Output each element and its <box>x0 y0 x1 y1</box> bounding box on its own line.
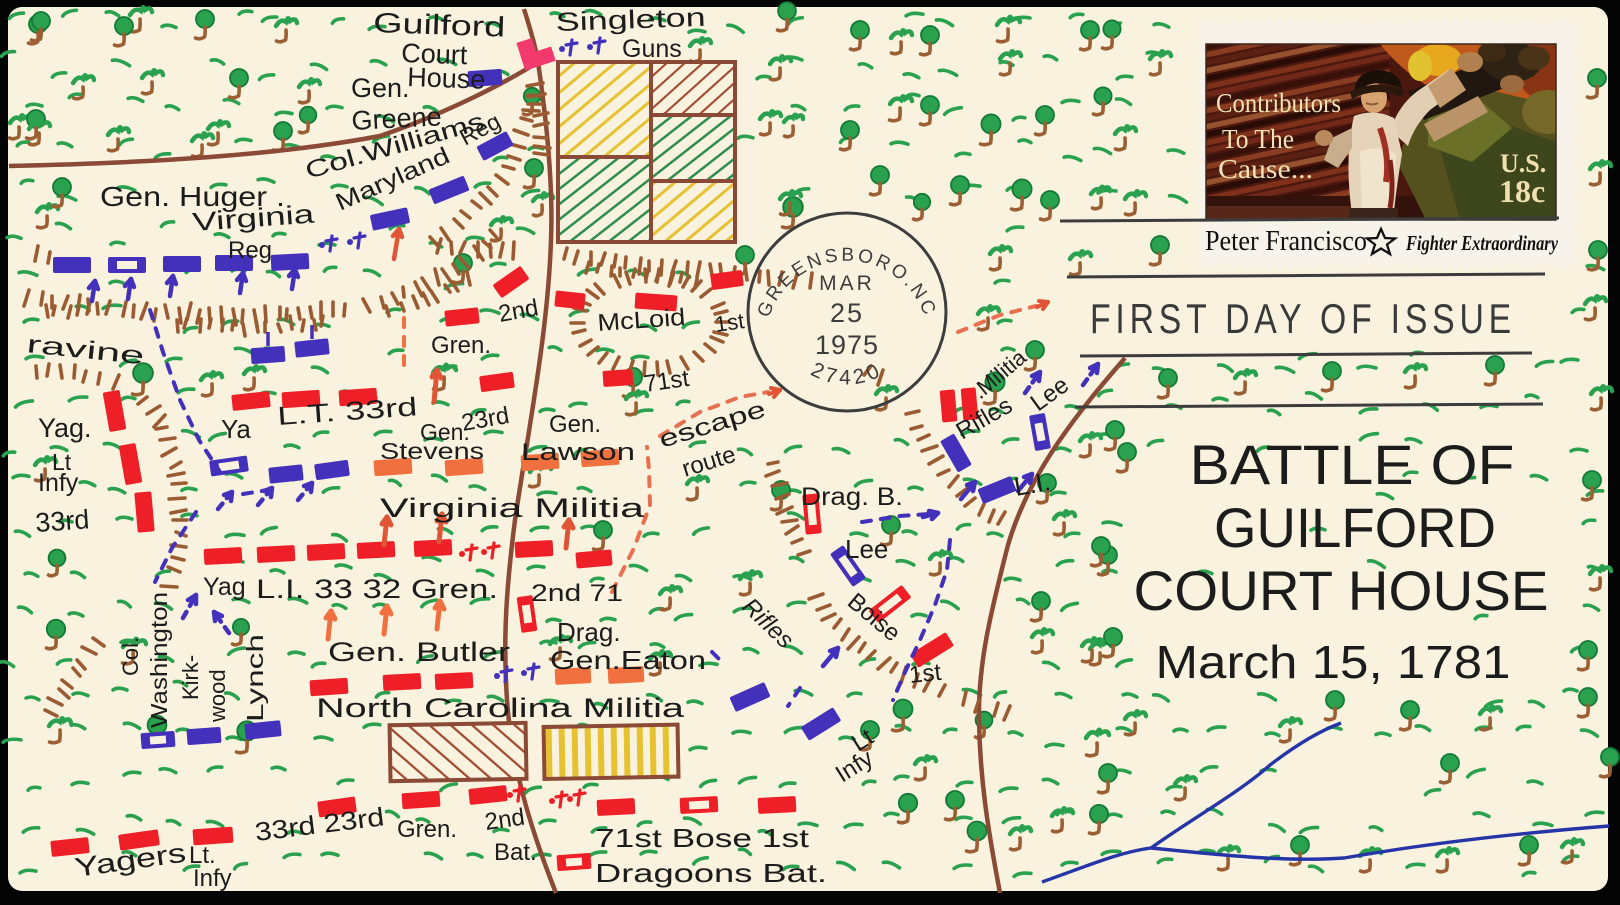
svg-text:Washington: Washington <box>146 592 172 728</box>
svg-text:Contributors: Contributors <box>1216 88 1341 118</box>
svg-text:March 15, 1781: March 15, 1781 <box>1156 636 1511 688</box>
svg-text:2nd: 2nd <box>483 804 526 836</box>
svg-text:MAR: MAR <box>819 272 875 295</box>
svg-text:FIRST DAY OF ISSUE: FIRST DAY OF ISSUE <box>1090 295 1516 342</box>
svg-text:Infy: Infy <box>38 469 79 497</box>
svg-text:Guilford: Guilford <box>373 7 506 43</box>
svg-text:Infy: Infy <box>193 865 232 892</box>
svg-text:Lynch: Lynch <box>242 634 268 722</box>
svg-text:Yag: Yag <box>203 573 246 601</box>
svg-text:Cause...: Cause... <box>1218 154 1313 184</box>
svg-text:2nd 71: 2nd 71 <box>531 580 623 607</box>
svg-text:Fighter Extraordinary: Fighter Extraordinary <box>1405 231 1558 255</box>
svg-text:L.I.: L.I. <box>1012 466 1053 502</box>
svg-text:wood: wood <box>205 669 230 723</box>
svg-text:33rd: 33rd <box>34 504 90 538</box>
svg-text:Gren.: Gren. <box>431 332 491 359</box>
svg-text:Lawson: Lawson <box>521 439 635 466</box>
svg-text:Gren.: Gren. <box>397 816 457 843</box>
svg-text:L.I. 33 32 Gren.: L.I. 33 32 Gren. <box>256 574 498 604</box>
svg-text:1st: 1st <box>908 659 943 689</box>
svg-text:Singleton: Singleton <box>555 2 706 37</box>
svg-text:Drag. B.: Drag. B. <box>801 483 903 511</box>
svg-text:Stevens: Stevens <box>380 438 484 464</box>
svg-text:House: House <box>407 62 486 95</box>
svg-text:1975: 1975 <box>815 330 879 360</box>
svg-text:Reg: Reg <box>228 237 272 264</box>
svg-text:1st: 1st <box>713 308 746 337</box>
svg-text:Gen. Butler: Gen. Butler <box>328 637 510 667</box>
svg-text:Lee: Lee <box>845 534 888 564</box>
svg-text:Drag.: Drag. <box>557 617 621 647</box>
svg-text:Gen.Eaton: Gen.Eaton <box>550 645 706 675</box>
svg-text:Virginia Militia: Virginia Militia <box>380 493 646 523</box>
svg-text:Ya: Ya <box>221 414 251 444</box>
svg-text:Gen.: Gen. <box>351 73 410 103</box>
svg-text:Guns: Guns <box>622 35 682 63</box>
svg-text:71st Bose 1st: 71st Bose 1st <box>595 823 810 853</box>
svg-text:Peter Francisco: Peter Francisco <box>1205 225 1367 257</box>
svg-text:BATTLE OF: BATTLE OF <box>1190 433 1515 496</box>
svg-text:Col.: Col. <box>118 637 143 676</box>
svg-text:North Carolina Militia: North Carolina Militia <box>316 693 685 723</box>
svg-text:Kirk-: Kirk- <box>178 655 203 700</box>
svg-text:Gen.: Gen. <box>549 411 601 438</box>
svg-text:GUILFORD: GUILFORD <box>1214 496 1496 559</box>
svg-text:25: 25 <box>830 298 864 328</box>
svg-text:Bat.: Bat. <box>494 839 537 866</box>
svg-text:Yag.: Yag. <box>38 413 92 443</box>
svg-text:To The: To The <box>1222 124 1294 154</box>
svg-text:18c: 18c <box>1499 173 1545 209</box>
svg-text:COURT HOUSE: COURT HOUSE <box>1134 559 1549 622</box>
svg-text:Dragoons Bat.: Dragoons Bat. <box>595 858 827 888</box>
